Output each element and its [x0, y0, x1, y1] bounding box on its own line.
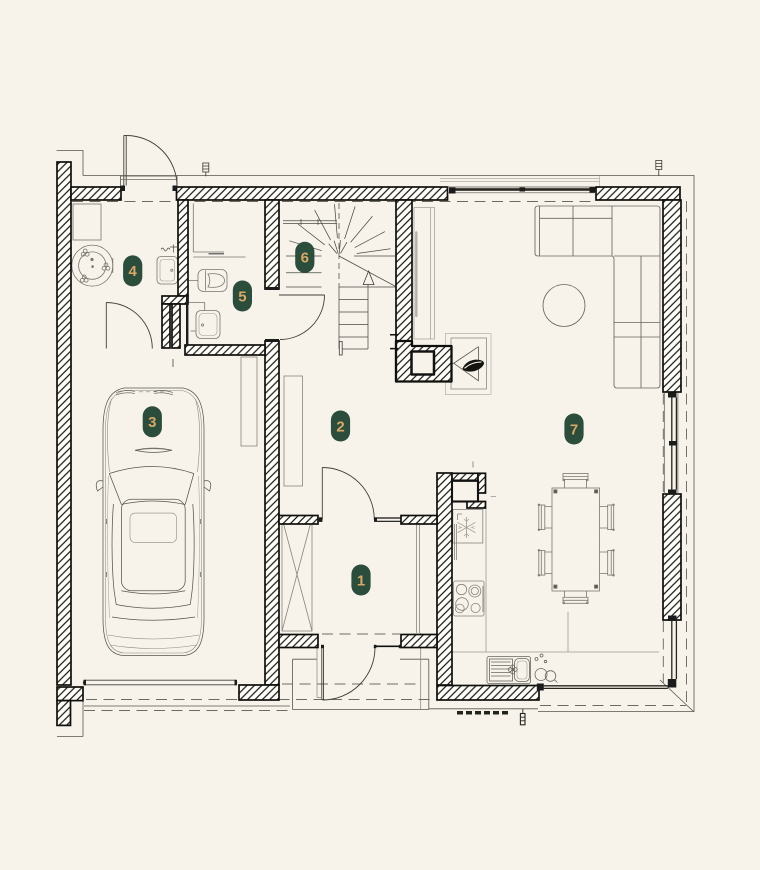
svg-text:3: 3 — [148, 414, 156, 431]
svg-text:1: 1 — [357, 572, 365, 589]
svg-text:2: 2 — [336, 418, 344, 435]
svg-text:4: 4 — [129, 263, 138, 280]
svg-text:7: 7 — [570, 421, 578, 438]
svg-text:6: 6 — [301, 250, 309, 267]
svg-text:5: 5 — [238, 288, 246, 305]
